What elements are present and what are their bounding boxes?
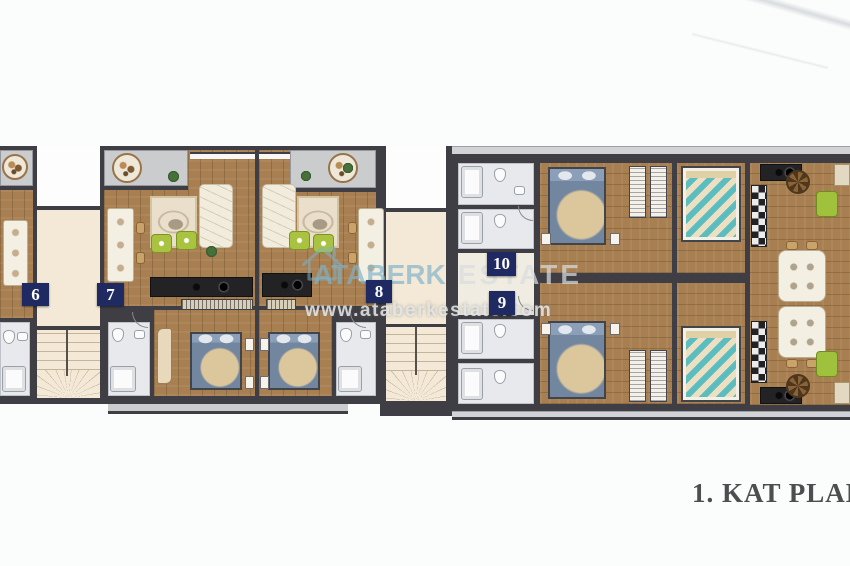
bed xyxy=(548,321,606,399)
wardrobe xyxy=(629,350,646,402)
sofa xyxy=(199,184,233,248)
sink xyxy=(17,332,28,341)
stair-stringer xyxy=(415,327,417,375)
landing xyxy=(386,212,446,324)
pouf xyxy=(176,231,197,250)
balcony-parapet xyxy=(259,152,290,159)
kitchen-counter xyxy=(150,277,253,297)
bathtub xyxy=(461,368,483,400)
dining-table xyxy=(778,250,826,302)
side-table xyxy=(834,382,850,404)
bed xyxy=(190,332,242,390)
light-well xyxy=(37,146,100,206)
nightstand xyxy=(245,376,254,389)
unit-label-6: 6 xyxy=(22,283,49,306)
chair xyxy=(806,241,818,250)
bathtub xyxy=(461,166,483,198)
unit-label-7: 7 xyxy=(97,283,124,306)
wardrobe xyxy=(650,350,667,402)
sink xyxy=(360,330,371,339)
unit-label-9: 9 xyxy=(489,291,515,315)
kitchen-cabinets xyxy=(266,299,296,310)
unit-label-10: 10 xyxy=(487,252,516,276)
wall xyxy=(104,186,188,190)
kitchen-cabinet-run xyxy=(751,321,767,383)
nightstand xyxy=(610,233,620,245)
floor-caption: 1. KAT PLANI xyxy=(692,478,850,509)
lower-terrace xyxy=(108,404,348,414)
chair xyxy=(786,241,798,250)
dining-table xyxy=(358,208,384,282)
wardrobe xyxy=(650,166,667,218)
bed xyxy=(548,167,606,245)
dining-table xyxy=(3,220,28,286)
staircase-winders xyxy=(37,370,100,398)
staircase xyxy=(37,330,100,370)
terrace-strip-top xyxy=(452,146,850,157)
armchair xyxy=(816,351,838,377)
plant xyxy=(167,170,180,183)
dresser xyxy=(157,328,172,384)
light-well xyxy=(386,146,446,208)
kitchen-cabinets xyxy=(181,299,253,310)
wheel-table xyxy=(786,374,810,398)
floor-plan-page: { "caption": { "text": "1. KAT PLANI" },… xyxy=(0,0,850,566)
landing xyxy=(37,210,100,326)
kitchen-counter xyxy=(262,273,312,297)
bathtub xyxy=(338,366,362,392)
stair-stringer xyxy=(66,330,68,376)
pouf xyxy=(289,231,310,250)
nightstand xyxy=(260,376,269,389)
terrace-strip-bottom xyxy=(452,411,850,420)
armchair xyxy=(816,191,838,217)
pouf xyxy=(313,234,334,253)
nightstand xyxy=(541,323,551,335)
sink xyxy=(514,186,525,195)
bathtub xyxy=(461,212,483,244)
nightstand xyxy=(610,323,620,335)
unit-number: 10 xyxy=(493,254,510,274)
unit-number: 9 xyxy=(498,293,507,313)
staircase-winders xyxy=(386,371,446,401)
kitchen-cabinet-run xyxy=(751,185,767,247)
nightstand xyxy=(260,338,269,351)
balcony-round-table xyxy=(2,154,28,180)
bathtub xyxy=(110,366,136,392)
plant xyxy=(342,162,354,174)
wardrobe xyxy=(629,166,646,218)
side-table xyxy=(834,164,850,186)
chair xyxy=(136,252,145,264)
wall xyxy=(290,188,376,192)
balcony-parapet xyxy=(190,152,255,159)
pouf xyxy=(151,234,172,253)
unit-number: 7 xyxy=(106,285,115,305)
bed xyxy=(268,332,320,390)
chair xyxy=(136,222,145,234)
chair xyxy=(348,222,357,234)
wheel-table xyxy=(786,170,810,194)
nightstand xyxy=(541,233,551,245)
bathtub xyxy=(461,322,483,354)
chair xyxy=(786,359,798,368)
unit-number: 8 xyxy=(375,282,384,302)
sink xyxy=(134,330,145,339)
stair-core-stub xyxy=(380,404,452,416)
unit-number: 6 xyxy=(31,285,40,305)
nightstand xyxy=(245,338,254,351)
unit-label-8: 8 xyxy=(366,280,392,303)
plant xyxy=(300,170,312,182)
bed xyxy=(681,166,741,242)
bed xyxy=(681,326,741,402)
chair xyxy=(348,252,357,264)
plant xyxy=(205,245,218,258)
balcony-round-table xyxy=(112,153,142,183)
dining-table xyxy=(107,208,134,282)
bathtub xyxy=(2,366,26,392)
